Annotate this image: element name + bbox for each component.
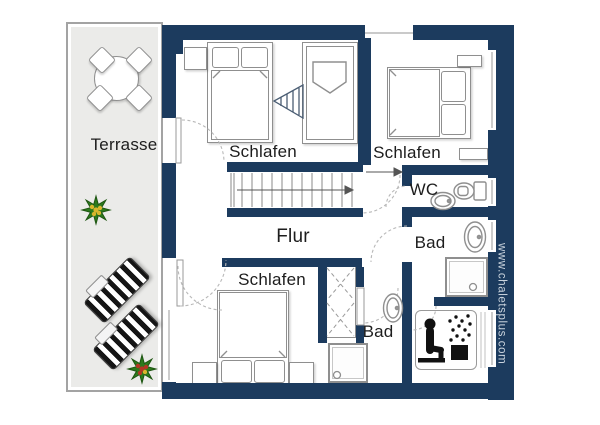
wall-segment xyxy=(402,165,488,175)
sauna-cabin xyxy=(415,310,477,370)
wall-segment xyxy=(162,383,514,399)
room-label-terrace: Terrasse xyxy=(91,135,158,155)
shower-icon xyxy=(328,343,368,383)
toilet-icon xyxy=(454,182,486,200)
room-label-wc: WC xyxy=(410,180,439,200)
room-label-bedroom-s: Schlafen xyxy=(238,270,306,290)
pillow-icon xyxy=(212,47,239,68)
mattress xyxy=(389,69,440,137)
washbasin-icon xyxy=(465,222,486,252)
nightstand-icon xyxy=(192,362,217,385)
wall-segment xyxy=(402,262,412,383)
shower-icon xyxy=(445,257,488,297)
pillow-icon xyxy=(241,47,268,68)
pillow-icon xyxy=(441,71,466,102)
wall-segment xyxy=(356,267,364,287)
wall-segment xyxy=(227,208,363,217)
floor-plan: Terrasse Schlafen Schlafen Flur WC Bad S… xyxy=(0,0,600,425)
wall-segment xyxy=(402,207,488,217)
pillow-icon xyxy=(221,360,252,383)
room-label-hallway: Flur xyxy=(276,226,310,248)
wall-segment xyxy=(434,297,488,306)
mattress xyxy=(211,70,269,140)
wall-segment xyxy=(162,163,176,258)
wall-segment xyxy=(358,38,371,165)
nightstand-icon xyxy=(289,362,314,385)
nightstand-icon xyxy=(184,47,207,70)
wardrobe-icon xyxy=(325,266,356,338)
wall-segment xyxy=(222,258,362,267)
pillow-icon xyxy=(254,360,285,383)
wall-segment xyxy=(227,162,363,172)
mattress xyxy=(219,292,287,358)
window xyxy=(488,50,496,130)
nightstand-icon xyxy=(457,55,482,67)
wall-segment xyxy=(162,25,176,118)
room-label-bathroom-e: Bad xyxy=(415,233,446,253)
window xyxy=(488,178,496,206)
room-label-bedroom-ne: Schlafen xyxy=(373,143,441,163)
watermark-url: www.chaletsplus.com xyxy=(489,212,514,396)
nightstand-icon xyxy=(459,148,488,160)
room-label-bathroom-s: Bad xyxy=(363,322,394,342)
wall-segment xyxy=(318,266,327,343)
room-label-bedroom-nw: Schlafen xyxy=(229,142,297,162)
wall-segment xyxy=(162,25,365,40)
mattress xyxy=(306,46,354,140)
ladder-icon xyxy=(274,85,303,118)
stairs-icon xyxy=(231,173,352,207)
washbasin-icon xyxy=(384,294,403,322)
pillow-icon xyxy=(441,104,466,135)
wall-segment xyxy=(402,207,412,227)
